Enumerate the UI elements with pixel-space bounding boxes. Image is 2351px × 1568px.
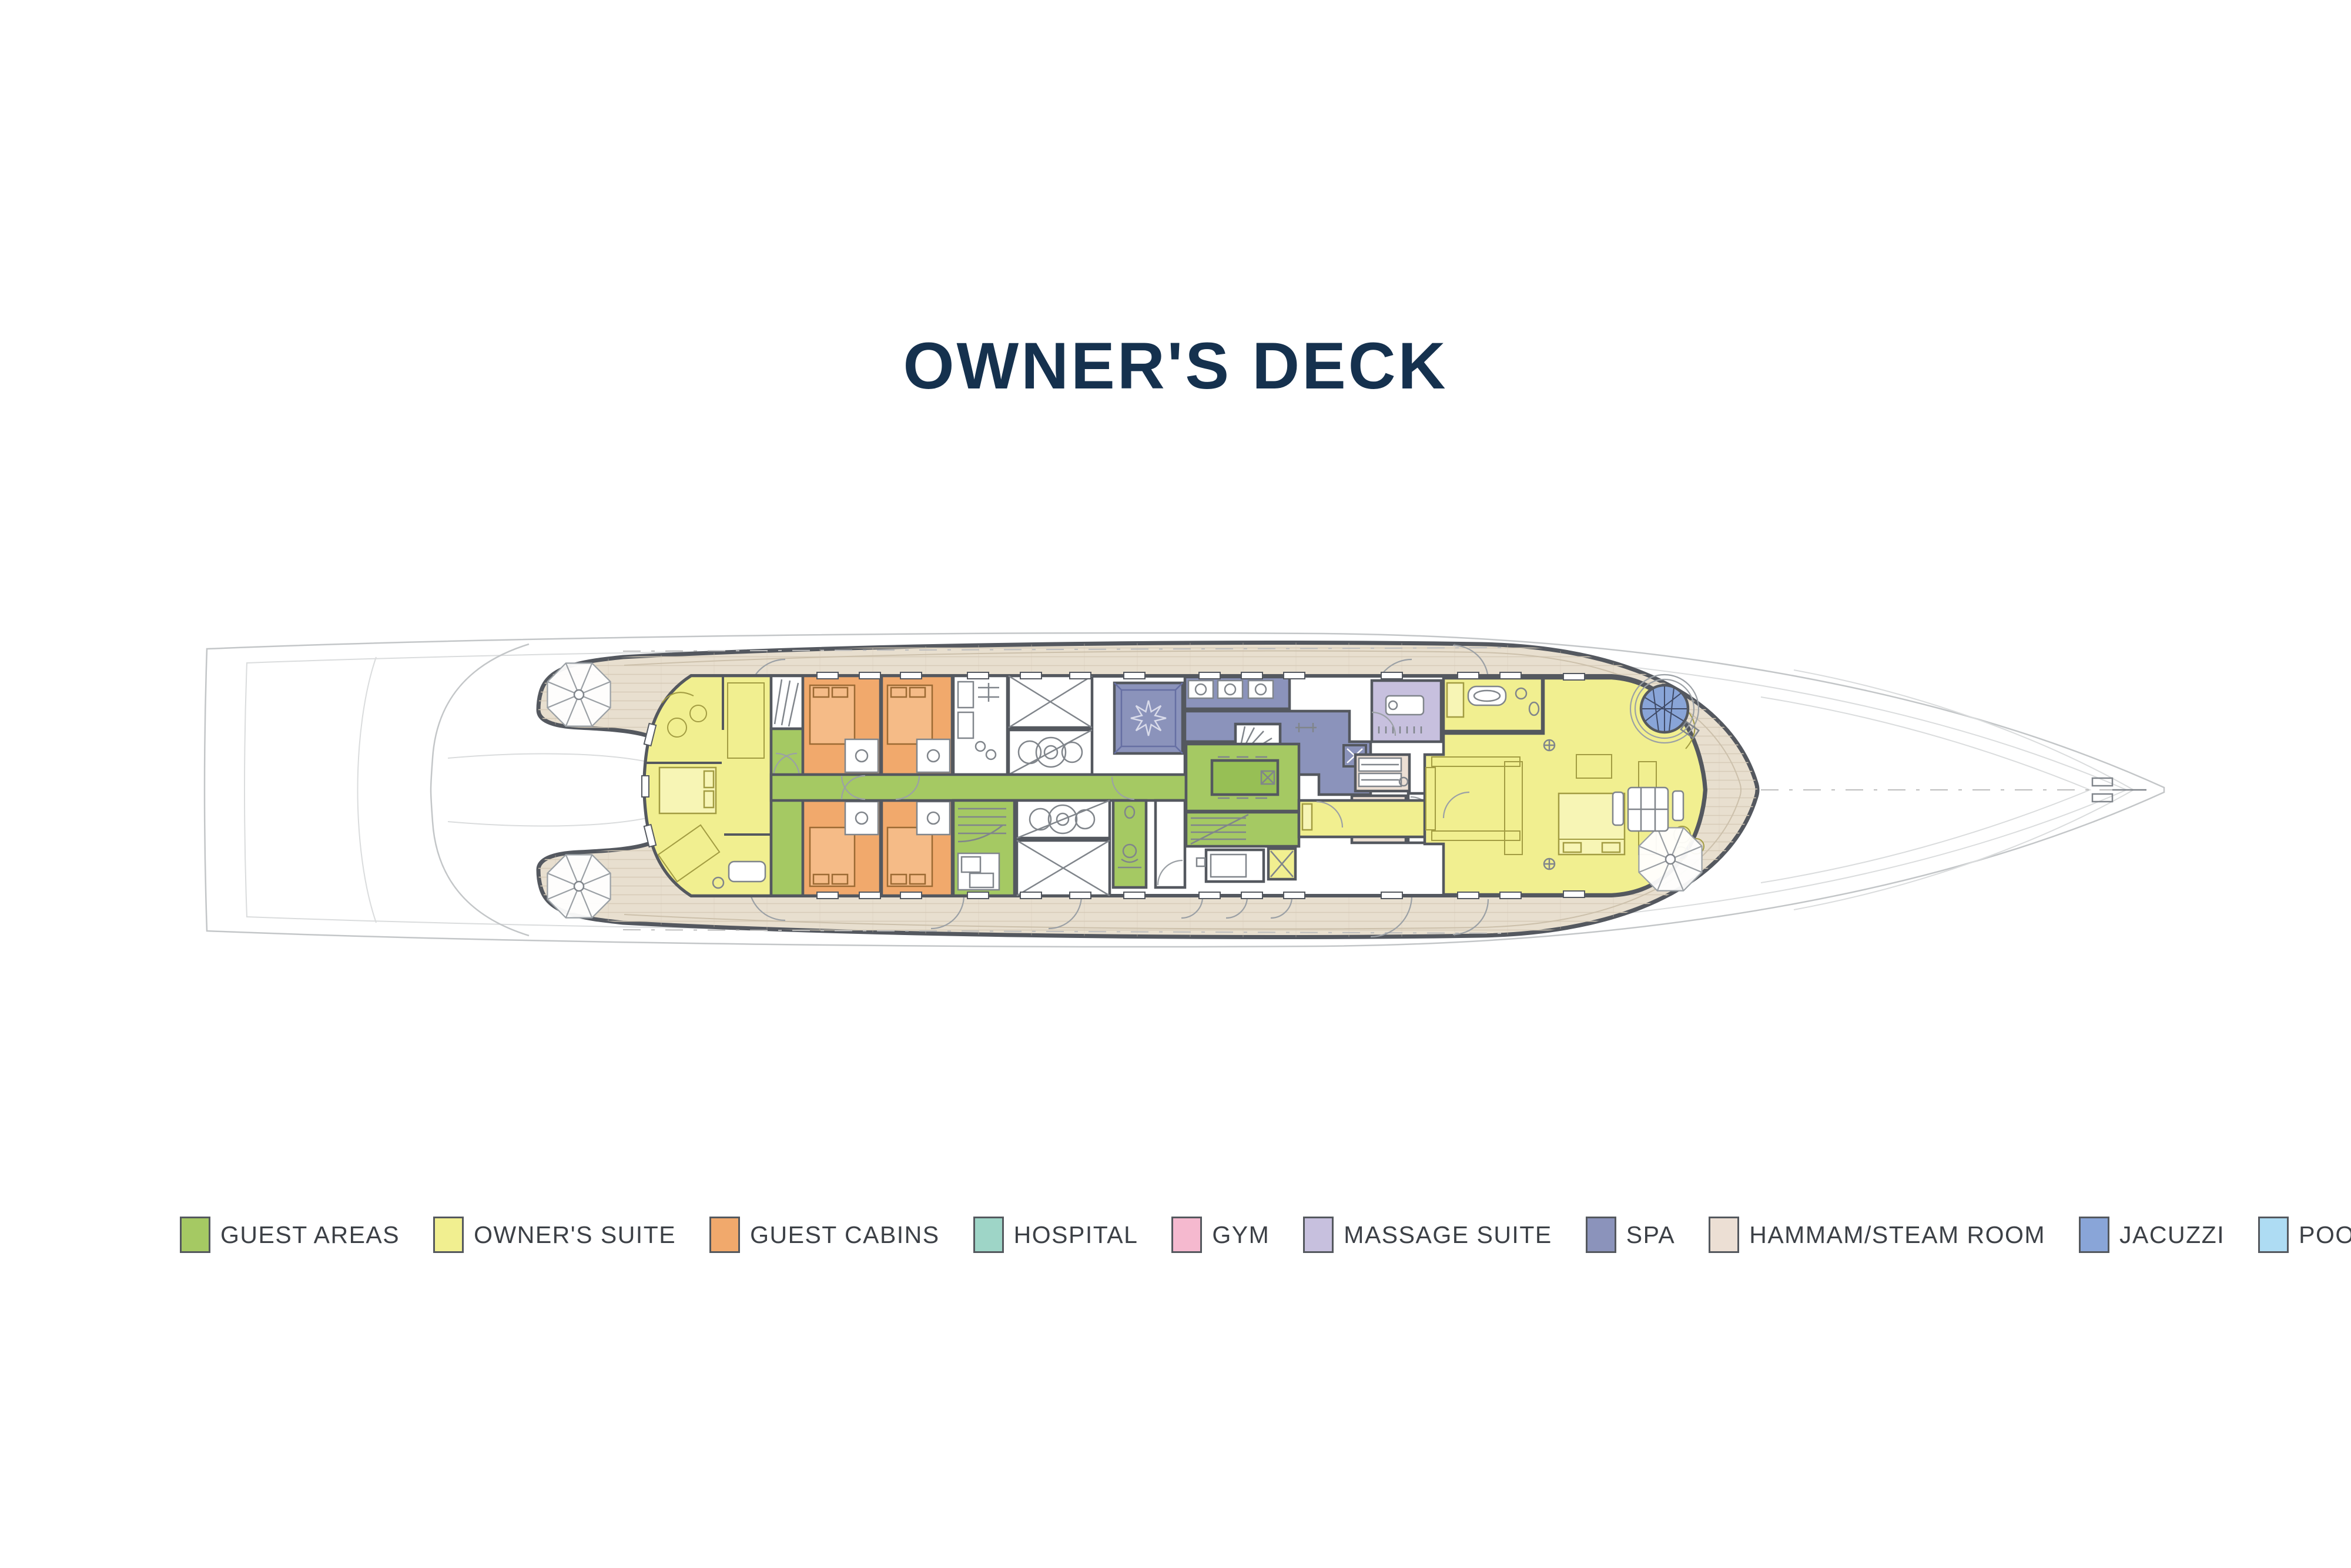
legend-item-gym: GYM <box>1171 1217 1270 1253</box>
legend-swatch-hospital <box>973 1217 1004 1253</box>
legend-item-owners-suite: OWNER'S SUITE <box>433 1217 676 1253</box>
legend-swatch-hammam-steam-room <box>1709 1217 1739 1253</box>
legend-label-owners-suite: OWNER'S SUITE <box>474 1223 676 1247</box>
room-aft-suite <box>644 676 771 896</box>
legend-label-pool: POOL <box>2299 1223 2351 1247</box>
legend-item-guest-cabins: GUEST CABINS <box>709 1217 940 1253</box>
legend-item-jacuzzi: JACUZZI <box>2079 1217 2225 1253</box>
legend-swatch-owners-suite <box>433 1217 464 1253</box>
room-exercise-equipment <box>953 676 1007 775</box>
legend-swatch-pool <box>2258 1217 2289 1253</box>
legend-swatch-guest-cabins <box>709 1217 740 1253</box>
legend-swatch-spa <box>1586 1217 1616 1253</box>
jacuzzi-icon <box>1630 675 1699 743</box>
legend-swatch-gym <box>1171 1217 1202 1253</box>
legend-swatch-guest-areas <box>180 1217 210 1253</box>
legend-label-hospital: HOSPITAL <box>1014 1223 1138 1247</box>
legend-label-hammam-steam-room: HAMMAM/STEAM ROOM <box>1749 1223 2045 1247</box>
skylight-voids-top <box>1009 676 1092 775</box>
parasol-icon-bow <box>1639 827 1702 890</box>
deck-plan-figure <box>0 0 2351 1568</box>
legend-item-pool: POOL <box>2258 1217 2351 1253</box>
room-massage-suite <box>1372 681 1441 742</box>
legend-label-guest-areas: GUEST AREAS <box>220 1223 400 1247</box>
legend-label-spa: SPA <box>1626 1223 1676 1247</box>
legend-item-massage-suite: MASSAGE SUITE <box>1303 1217 1552 1253</box>
legend-swatch-jacuzzi <box>2079 1217 2109 1253</box>
legend-label-jacuzzi: JACUZZI <box>2119 1223 2225 1247</box>
parasol-icon-aft-top <box>547 663 610 726</box>
legend: GUEST AREAS OWNER'S SUITE GUEST CABINS H… <box>180 1217 2351 1253</box>
room-spa-hammam-mosaic <box>1114 683 1183 753</box>
legend-item-hammam-steam-room: HAMMAM/STEAM ROOM <box>1709 1217 2045 1253</box>
legend-item-hospital: HOSPITAL <box>973 1217 1138 1253</box>
page: OWNER'S DECK <box>0 0 2351 1568</box>
legend-label-guest-cabins: GUEST CABINS <box>750 1223 940 1247</box>
legend-item-guest-areas: GUEST AREAS <box>180 1217 400 1253</box>
room-owners-bathroom <box>1444 678 1542 731</box>
legend-label-gym: GYM <box>1212 1223 1270 1247</box>
legend-item-spa: SPA <box>1586 1217 1676 1253</box>
legend-swatch-massage-suite <box>1303 1217 1334 1253</box>
interior-rooms <box>642 672 1706 899</box>
legend-label-massage-suite: MASSAGE SUITE <box>1344 1223 1552 1247</box>
parasol-icon-aft-bottom <box>547 855 610 917</box>
